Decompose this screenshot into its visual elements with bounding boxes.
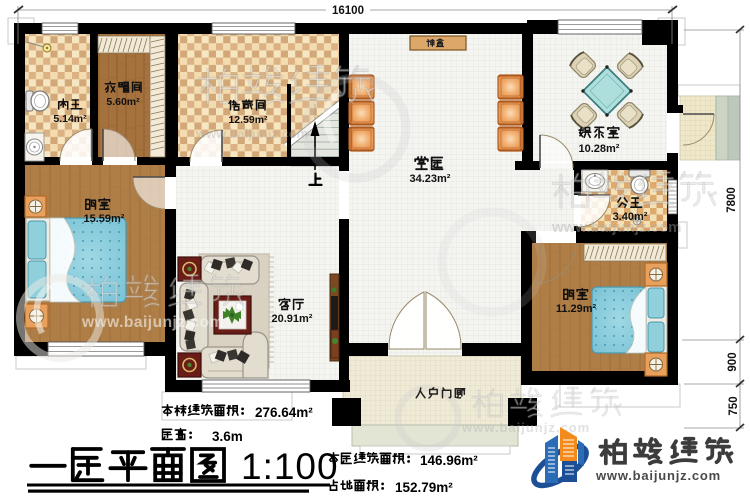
svg-text:152.79m²: 152.79m² bbox=[395, 480, 453, 495]
svg-text:750: 750 bbox=[728, 396, 740, 415]
svg-text:5.60m²: 5.60m² bbox=[106, 96, 140, 108]
svg-text:3.6m: 3.6m bbox=[212, 429, 243, 444]
svg-text:16100: 16100 bbox=[332, 5, 364, 17]
svg-text:10.28m²: 10.28m² bbox=[579, 143, 620, 155]
svg-text:20.91m²: 20.91m² bbox=[272, 313, 313, 325]
svg-text:900: 900 bbox=[727, 352, 739, 371]
svg-text:www.baijunjz.com: www.baijunjz.com bbox=[595, 468, 721, 483]
svg-text:34.23m²: 34.23m² bbox=[410, 173, 451, 185]
svg-text:5.14m²: 5.14m² bbox=[53, 113, 87, 125]
svg-text:7800: 7800 bbox=[726, 187, 738, 213]
svg-text:11.29m²: 11.29m² bbox=[556, 303, 597, 315]
svg-text:276.64m²: 276.64m² bbox=[255, 405, 313, 420]
svg-text:15.59m²: 15.59m² bbox=[84, 213, 125, 225]
svg-text:www.baijunjz.com: www.baijunjz.com bbox=[461, 420, 590, 435]
svg-text:3.40m²: 3.40m² bbox=[613, 211, 648, 223]
svg-text:12.59m²: 12.59m² bbox=[228, 114, 268, 126]
svg-text:1:100: 1:100 bbox=[241, 446, 339, 487]
svg-text:www.baijunjz.com: www.baijunjz.com bbox=[195, 126, 308, 141]
svg-text:146.96m²: 146.96m² bbox=[420, 453, 478, 468]
